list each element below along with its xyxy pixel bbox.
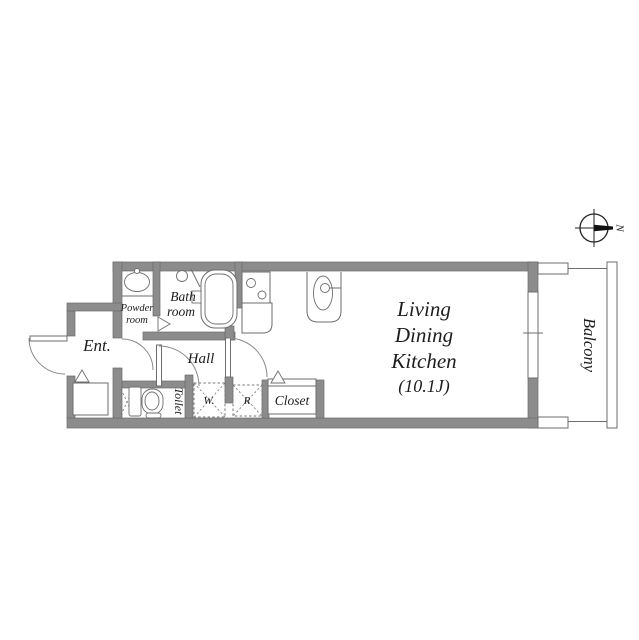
hall: Hall <box>122 338 267 386</box>
ent-hall-door-arc <box>122 339 153 370</box>
shoe-cabinet <box>73 383 108 415</box>
sink-icon <box>125 273 150 292</box>
fridge-label: R <box>243 395 251 407</box>
ldk-label-kitchen: Kitchen <box>390 349 456 373</box>
balcony-wall-cap-top <box>538 263 568 274</box>
bathtub-inner <box>205 274 233 324</box>
ldk-door-arc <box>228 338 267 377</box>
bath-room-label-1: Bath <box>170 289 196 304</box>
hall-label: Hall <box>187 351 215 367</box>
kitchen-counter <box>242 303 272 333</box>
toilet-label: Toilet <box>172 388 186 416</box>
wall-ent-top <box>67 303 122 311</box>
wall-bath-bottom <box>143 332 235 340</box>
ent-door-marker-icon <box>75 370 89 382</box>
wall-powder-bath-divider <box>153 262 160 316</box>
toilet-base <box>146 413 161 418</box>
ldk-room: Living Dining Kitchen (10.1J) <box>390 297 456 397</box>
ldk-door-leaf <box>226 338 231 377</box>
powder-room-label-2: room <box>126 315 148 326</box>
closet-label: Closet <box>275 393 311 408</box>
balcony-label: Balcony <box>580 318 599 373</box>
wall-left-upper <box>113 262 122 338</box>
wall-ent-left-upper <box>67 311 75 336</box>
stove-burner-1 <box>247 279 256 288</box>
toilet-room: Toilet <box>121 387 186 418</box>
kitchen-faucet-icon <box>321 284 330 293</box>
closet: Closet <box>268 371 316 414</box>
wall-bottom <box>67 418 538 428</box>
ldk-label-area: (10.1J) <box>398 376 449 397</box>
shower-bar <box>191 269 200 287</box>
wall-closet-right <box>316 380 324 418</box>
stove-icon <box>242 272 270 303</box>
front-door-swing-arc <box>29 338 65 374</box>
sliding-window <box>528 292 538 378</box>
balcony-wall-cap-bottom <box>538 417 568 428</box>
kitchen-sink-basin <box>314 276 333 310</box>
balcony-rail <box>607 262 617 428</box>
washroom-door-leaf <box>157 345 162 386</box>
bath-door-marker-icon <box>158 317 170 331</box>
ldk-label-living: Living <box>396 297 451 321</box>
bath-room: Bath room <box>158 269 237 331</box>
washer-label: W. <box>204 395 215 407</box>
powder-room: Powder room <box>120 269 155 327</box>
toilet-tank <box>129 387 141 416</box>
front-door-leaf <box>30 336 67 341</box>
compass-needle <box>594 225 613 232</box>
wall-top <box>113 262 538 271</box>
ldk-label-dining: Dining <box>394 323 453 347</box>
stove-burner-2 <box>258 291 266 299</box>
sink-faucet-icon <box>135 269 140 274</box>
shower-icon <box>177 271 188 282</box>
wall-right-upper <box>528 262 538 292</box>
compass-north-label: N <box>613 223 625 232</box>
compass-icon: N <box>575 209 625 247</box>
powder-room-label-1: Powder <box>120 303 155 314</box>
closet-door-marker-icon <box>271 371 285 383</box>
wall-left-lower <box>113 368 122 418</box>
ent-label: Ent. <box>82 336 111 355</box>
wall-w-r-stub <box>225 377 233 403</box>
kitchen <box>242 272 341 333</box>
toilet-seat <box>145 392 159 410</box>
bath-room-label-2: room <box>167 304 195 319</box>
floor-plan-svg: Balcony N Powder room Bath room <box>0 0 639 640</box>
